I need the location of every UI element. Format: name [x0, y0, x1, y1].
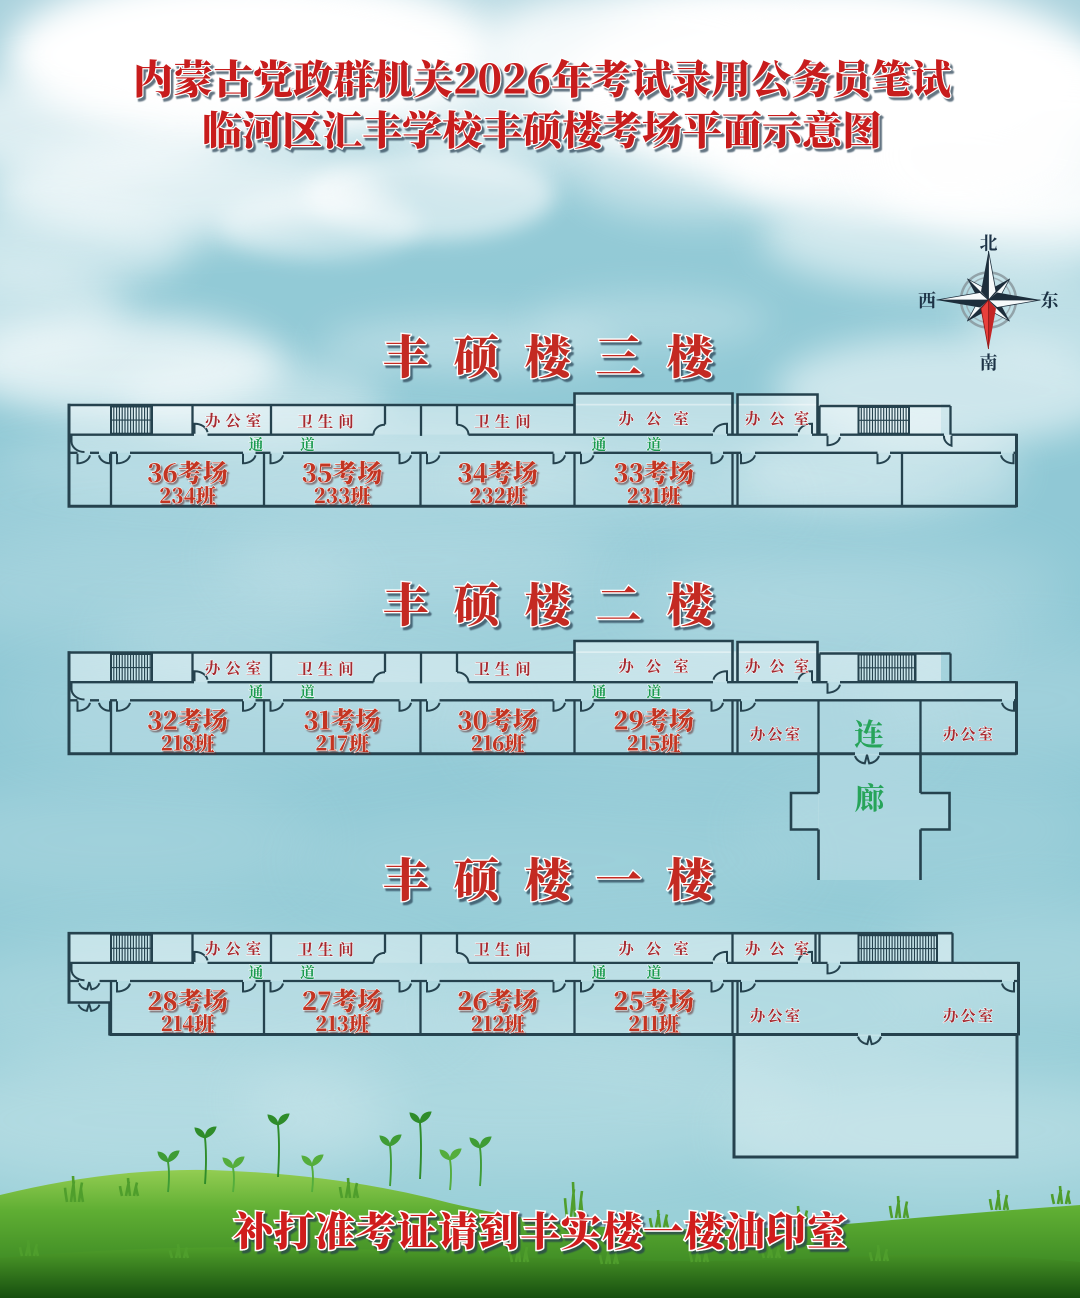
svg-text:道: 道: [300, 433, 315, 454]
svg-text:233班: 233班: [314, 480, 371, 509]
svg-text:西: 西: [918, 287, 936, 313]
svg-text:丰硕楼一楼: 丰硕楼一楼: [383, 845, 738, 911]
svg-text:212班: 212班: [471, 1008, 525, 1037]
svg-text:卫生间: 卫生间: [474, 938, 536, 960]
svg-text:通: 通: [591, 961, 606, 982]
svg-text:丰硕楼三楼: 丰硕楼三楼: [383, 322, 738, 388]
svg-text:通: 通: [248, 961, 263, 982]
svg-text:办公室: 办公室: [205, 657, 267, 679]
svg-text:232班: 232班: [469, 480, 526, 509]
svg-text:216班: 216班: [471, 728, 525, 757]
svg-text:丰硕楼二楼: 丰硕楼二楼: [383, 570, 738, 636]
svg-text:通: 通: [248, 433, 263, 454]
svg-text:卫生间: 卫生间: [474, 658, 536, 680]
svg-text:卫生间: 卫生间: [297, 658, 359, 680]
svg-text:234班: 234班: [159, 480, 216, 509]
svg-text:通: 通: [248, 681, 263, 702]
svg-text:办公室: 办公室: [618, 407, 701, 429]
svg-text:231班: 231班: [627, 480, 681, 509]
svg-text:办公室: 办公室: [618, 655, 701, 677]
svg-text:办公室: 办公室: [943, 723, 996, 745]
svg-text:临河区汇丰学校丰硕楼考场平面示意图: 临河区汇丰学校丰硕楼考场平面示意图: [202, 100, 882, 157]
svg-text:东: 东: [1041, 287, 1060, 313]
svg-text:办公室: 办公室: [618, 937, 701, 959]
svg-text:道: 道: [646, 961, 661, 982]
svg-text:218班: 218班: [161, 728, 215, 757]
svg-text:办公室: 办公室: [205, 937, 267, 959]
svg-text:217班: 217班: [315, 728, 369, 757]
svg-text:办公室: 办公室: [750, 1004, 803, 1026]
svg-text:办公室: 办公室: [943, 1004, 996, 1026]
svg-text:内蒙古党政群机关2026年考试录用公务员笔试: 内蒙古党政群机关2026年考试录用公务员笔试: [133, 49, 951, 106]
svg-text:卫生间: 卫生间: [297, 410, 359, 432]
svg-text:215班: 215班: [627, 728, 681, 757]
svg-text:办公室: 办公室: [745, 655, 819, 677]
svg-text:通: 通: [591, 433, 606, 454]
svg-text:南: 南: [980, 349, 998, 375]
svg-text:213班: 213班: [315, 1008, 369, 1037]
svg-text:办公室: 办公室: [745, 937, 819, 959]
svg-text:卫生间: 卫生间: [297, 938, 359, 960]
svg-text:214班: 214班: [161, 1008, 215, 1037]
svg-text:卫生间: 卫生间: [474, 410, 536, 432]
svg-text:办公室: 办公室: [750, 723, 803, 745]
svg-text:连: 连: [854, 710, 884, 754]
svg-text:211班: 211班: [628, 1008, 679, 1037]
svg-text:补打准考证请到丰实楼一楼油印室: 补打准考证请到丰实楼一楼油印室: [233, 1201, 848, 1258]
svg-text:道: 道: [300, 961, 315, 982]
svg-text:道: 道: [300, 681, 315, 702]
svg-text:道: 道: [646, 433, 661, 454]
svg-text:办公室: 办公室: [745, 407, 819, 429]
svg-text:办公室: 办公室: [205, 409, 267, 431]
svg-text:北: 北: [980, 230, 998, 256]
svg-text:道: 道: [646, 681, 661, 702]
svg-text:廊: 廊: [855, 774, 885, 818]
svg-text:通: 通: [591, 681, 606, 702]
